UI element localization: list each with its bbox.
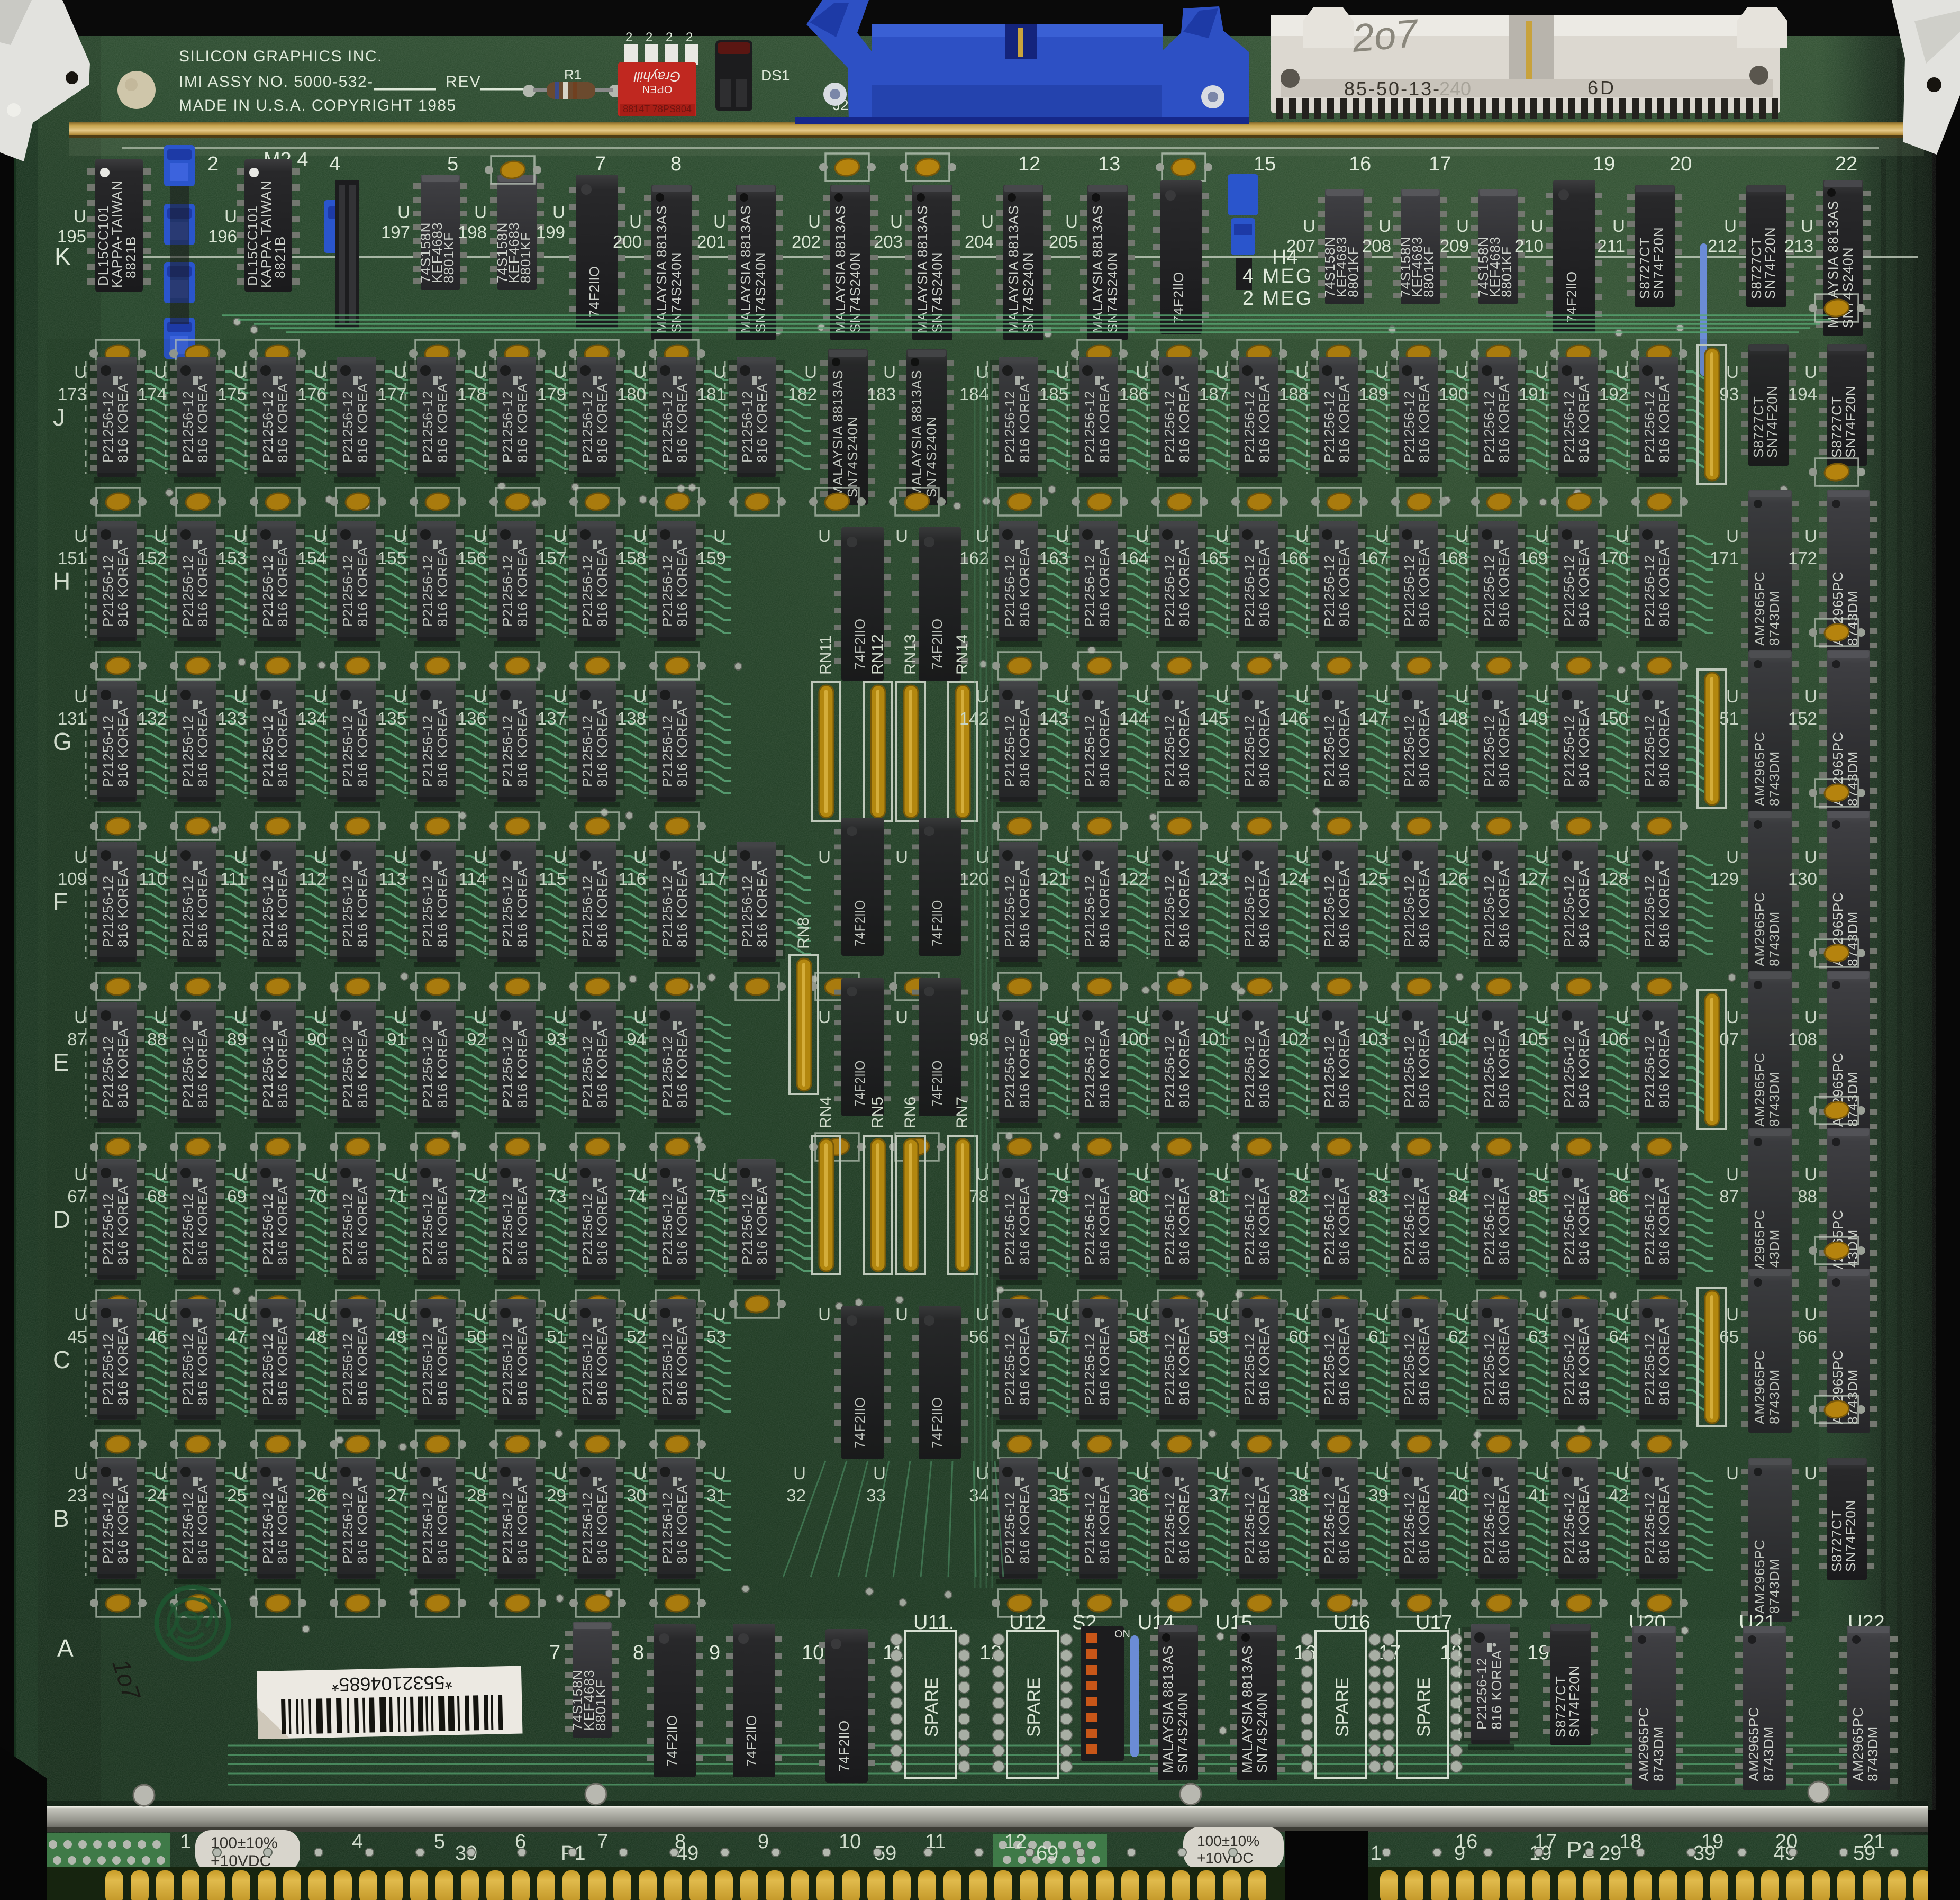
svg-text:R1: R1 bbox=[564, 67, 582, 83]
svg-text:U: U bbox=[1531, 216, 1544, 236]
svg-text:SILICON GRAPHICS INC.: SILICON GRAPHICS INC. bbox=[179, 48, 383, 65]
svg-text:7: 7 bbox=[597, 1831, 608, 1853]
svg-text:Grayhill: Grayhill bbox=[633, 69, 680, 85]
svg-text:207: 207 bbox=[1286, 236, 1315, 256]
svg-text:U: U bbox=[981, 212, 994, 231]
svg-text:9: 9 bbox=[709, 1642, 720, 1664]
svg-text:9: 9 bbox=[1454, 1842, 1465, 1865]
svg-text:IMI ASSY NO. 5000-532-: IMI ASSY NO. 5000-532- bbox=[179, 73, 374, 91]
svg-text:197: 197 bbox=[381, 222, 410, 242]
svg-text:2 MEG: 2 MEG bbox=[1242, 287, 1313, 310]
svg-text:U: U bbox=[890, 212, 903, 231]
svg-text:*5532104685*: *5532104685* bbox=[331, 1671, 452, 1696]
svg-text:85-50-13-: 85-50-13- bbox=[1344, 78, 1441, 99]
svg-text:15: 15 bbox=[1254, 153, 1276, 175]
svg-text:MADE IN U.S.A. COPYRIGHT 1985: MADE IN U.S.A. COPYRIGHT 1985 bbox=[179, 97, 457, 114]
svg-text:8: 8 bbox=[633, 1642, 644, 1664]
svg-text:2: 2 bbox=[625, 30, 632, 44]
svg-text:7: 7 bbox=[549, 1642, 560, 1664]
svg-text:DS1: DS1 bbox=[761, 67, 790, 84]
svg-text:10: 10 bbox=[839, 1831, 861, 1853]
svg-text:195: 195 bbox=[57, 227, 86, 246]
svg-text:REV: REV bbox=[446, 73, 482, 91]
svg-text:U: U bbox=[713, 212, 726, 231]
svg-text:4 MEG: 4 MEG bbox=[1242, 265, 1313, 287]
svg-text:17: 17 bbox=[1429, 153, 1451, 175]
svg-text:U: U bbox=[224, 206, 237, 226]
svg-text:211: 211 bbox=[1597, 236, 1625, 256]
svg-text:U: U bbox=[474, 202, 487, 222]
svg-text:22: 22 bbox=[1835, 153, 1857, 175]
svg-text:U: U bbox=[808, 212, 821, 231]
svg-text:200: 200 bbox=[613, 232, 642, 251]
svg-text:203: 203 bbox=[874, 232, 903, 251]
svg-text:100±10%: 100±10% bbox=[1197, 1833, 1259, 1849]
svg-text:9: 9 bbox=[758, 1831, 769, 1853]
svg-text:49: 49 bbox=[676, 1842, 698, 1865]
svg-text:209: 209 bbox=[1440, 236, 1469, 256]
svg-text:U: U bbox=[397, 202, 410, 222]
svg-text:7: 7 bbox=[595, 153, 606, 175]
svg-text:5: 5 bbox=[447, 153, 458, 175]
svg-text:205: 205 bbox=[1049, 232, 1078, 251]
svg-text:U: U bbox=[552, 202, 565, 222]
svg-text:16: 16 bbox=[1349, 153, 1371, 175]
svg-text:K: K bbox=[55, 242, 71, 270]
svg-text:204: 204 bbox=[965, 232, 994, 251]
svg-text:A: A bbox=[57, 1634, 74, 1662]
svg-text:13: 13 bbox=[1098, 153, 1120, 175]
svg-text:210: 210 bbox=[1514, 236, 1544, 256]
svg-text:2: 2 bbox=[207, 153, 219, 175]
svg-text:8814T 78PS804: 8814T 78PS804 bbox=[623, 104, 692, 114]
svg-text:12: 12 bbox=[1004, 1831, 1027, 1853]
svg-text:8: 8 bbox=[670, 153, 682, 175]
svg-text:4: 4 bbox=[352, 1831, 363, 1853]
svg-text:U: U bbox=[1378, 216, 1391, 236]
svg-text:69: 69 bbox=[1036, 1842, 1058, 1865]
svg-text:202: 202 bbox=[792, 232, 821, 251]
svg-text:1: 1 bbox=[1371, 1842, 1382, 1865]
svg-text:ON: ON bbox=[1114, 1628, 1130, 1640]
svg-text:OPEN: OPEN bbox=[642, 83, 673, 95]
svg-text:19: 19 bbox=[1593, 153, 1615, 175]
svg-text:U: U bbox=[1801, 216, 1813, 236]
svg-text:2: 2 bbox=[646, 30, 652, 44]
svg-text:208: 208 bbox=[1362, 236, 1391, 256]
svg-text:59: 59 bbox=[1853, 1842, 1875, 1865]
svg-text:U: U bbox=[1612, 216, 1625, 236]
svg-text:4: 4 bbox=[329, 153, 340, 175]
svg-text:201: 201 bbox=[697, 232, 726, 251]
svg-text:5: 5 bbox=[434, 1831, 445, 1853]
svg-text:U: U bbox=[1456, 216, 1469, 236]
svg-text:U: U bbox=[1065, 212, 1078, 231]
svg-text:1: 1 bbox=[180, 1831, 191, 1853]
svg-text:212: 212 bbox=[1708, 236, 1737, 256]
svg-text:196: 196 bbox=[208, 227, 237, 246]
svg-text:2: 2 bbox=[666, 30, 673, 44]
svg-text:6D: 6D bbox=[1587, 77, 1616, 98]
svg-text:199: 199 bbox=[536, 222, 565, 242]
svg-text:2: 2 bbox=[686, 30, 693, 44]
svg-text:29: 29 bbox=[1599, 1842, 1621, 1865]
svg-text:39: 39 bbox=[1693, 1842, 1716, 1865]
svg-text:U: U bbox=[1303, 216, 1315, 236]
svg-text:213: 213 bbox=[1784, 236, 1813, 256]
svg-text:20: 20 bbox=[1669, 153, 1692, 175]
svg-text:+10VDC: +10VDC bbox=[1197, 1850, 1254, 1866]
svg-text:2o7: 2o7 bbox=[1350, 11, 1421, 60]
svg-text:U: U bbox=[1724, 216, 1737, 236]
svg-text:U: U bbox=[74, 206, 86, 226]
svg-text:12: 12 bbox=[1018, 153, 1040, 175]
svg-text:198: 198 bbox=[458, 222, 487, 242]
svg-text:240: 240 bbox=[1439, 78, 1471, 99]
svg-text:U: U bbox=[629, 212, 642, 231]
